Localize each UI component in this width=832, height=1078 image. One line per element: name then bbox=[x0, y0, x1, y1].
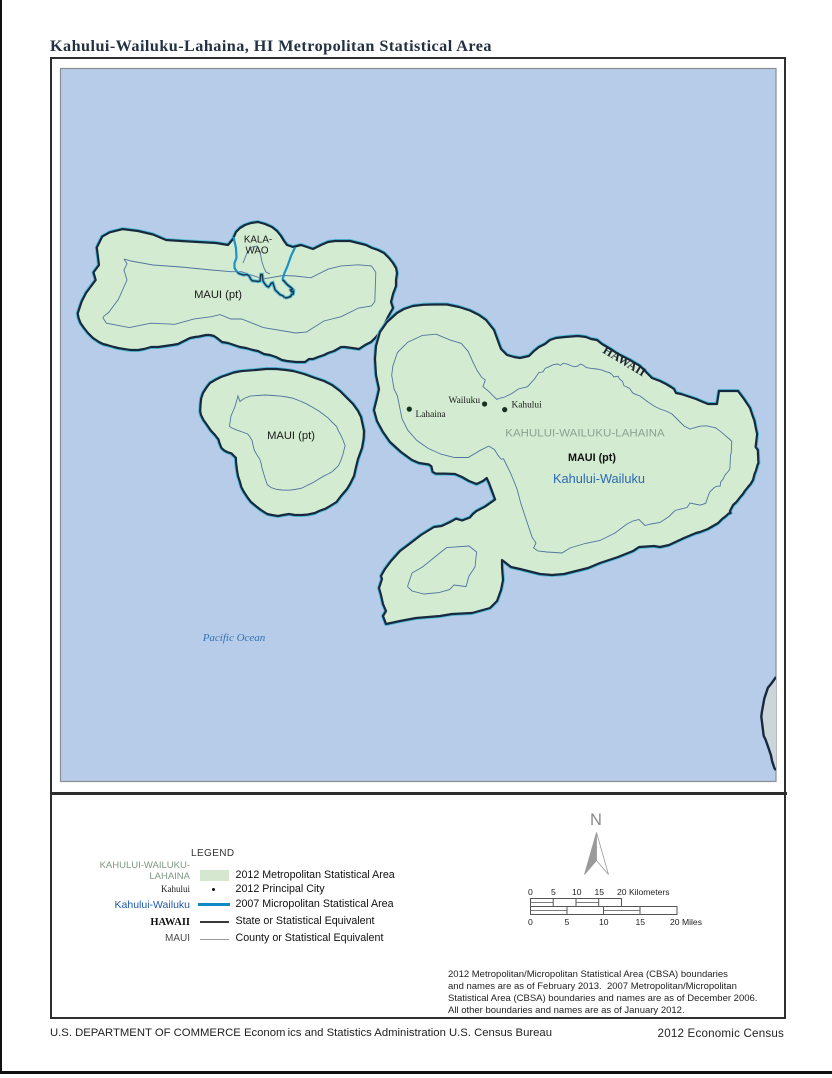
svg-text:WAO: WAO bbox=[245, 246, 268, 257]
svg-text:KAHULUI-WAILUKU-LAHAINA: KAHULUI-WAILUKU-LAHAINA bbox=[505, 428, 665, 440]
svg-text:MAUI (pt): MAUI (pt) bbox=[568, 452, 616, 464]
svg-text:Pacific Ocean: Pacific Ocean bbox=[202, 632, 266, 644]
svg-text:Wailuku: Wailuku bbox=[449, 396, 481, 406]
svg-text:Kahului: Kahului bbox=[512, 401, 543, 411]
svg-text:MAUI (pt): MAUI (pt) bbox=[194, 289, 242, 301]
svg-text:Lahaina: Lahaina bbox=[416, 410, 447, 420]
svg-text:MAUI (pt): MAUI (pt) bbox=[267, 430, 315, 442]
svg-text:KALA-: KALA- bbox=[244, 235, 272, 246]
svg-text:Kahului-Wailuku: Kahului-Wailuku bbox=[553, 471, 645, 486]
